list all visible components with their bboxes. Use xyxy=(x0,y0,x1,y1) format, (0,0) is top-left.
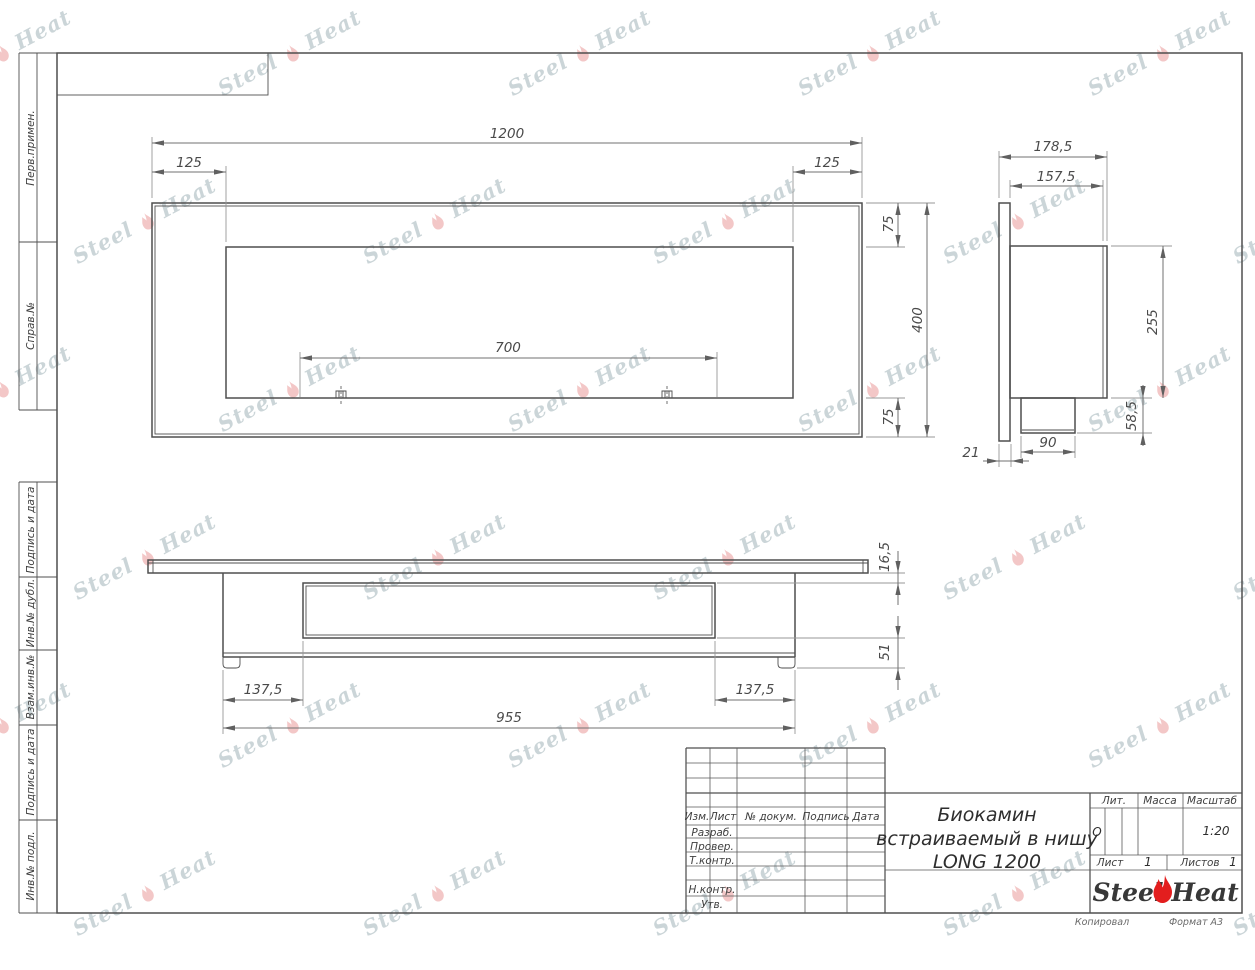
lit-label: Лит. xyxy=(1101,795,1126,807)
plan-view: 16,5 51 137,5 137,5 955 xyxy=(148,542,905,734)
dim-plan-left-offset: 137,5 xyxy=(244,682,283,698)
logo-text-steel: Steel xyxy=(1093,878,1164,907)
sheet-label: Лист xyxy=(1096,857,1124,869)
col-header-doc: № докум. xyxy=(744,811,797,823)
dim-side-flange-thickness: 21 xyxy=(962,445,979,461)
dim-plan-plate-thickness: 16,5 xyxy=(877,542,893,572)
logo-text-heat: Heat xyxy=(1170,878,1239,907)
dim-front-bottom-margin: 75 xyxy=(881,408,897,425)
doc-title-line1: Биокамин xyxy=(937,804,1036,826)
col-header-sign: Подпись xyxy=(802,811,849,823)
copied-note: Копировал xyxy=(1075,917,1129,928)
footer-notes: Копировал Формат А3 xyxy=(1075,917,1223,928)
dim-front-total-width: 1200 xyxy=(490,126,524,142)
sheet-number: 1 xyxy=(1144,855,1152,869)
top-left-stamp-box xyxy=(57,53,268,95)
lit-value: О xyxy=(1092,825,1101,839)
dim-side-depth-body: 157,5 xyxy=(1037,169,1076,185)
doc-title-line2: встраиваемый в нишу xyxy=(876,828,1098,850)
dim-front-top-margin: 75 xyxy=(881,215,897,232)
dim-plan-body-width: 955 xyxy=(496,710,522,726)
margin-label-vzam-inv: Взам.инв.№ xyxy=(25,655,37,720)
title-block: Изм. Лист № докум. Подпись Дата Разраб. … xyxy=(685,748,1242,913)
scale-value: 1:20 xyxy=(1203,824,1230,838)
margin-label-sprav-n: Справ.№ xyxy=(25,302,37,350)
role-prover: Провер. xyxy=(690,841,734,853)
dim-plan-body-drop: 51 xyxy=(877,643,893,660)
front-view: 1200 125 125 700 75 400 75 xyxy=(152,126,935,437)
dim-side-foot-height: 58,5 xyxy=(1124,401,1140,431)
dim-front-right-inset: 125 xyxy=(814,155,840,171)
col-header-list: Лист xyxy=(709,811,737,823)
dim-plan-right-offset: 137,5 xyxy=(736,682,775,698)
role-utv: Утв. xyxy=(701,899,723,911)
side-view: 178,5 157,5 255 58,5 90 21 xyxy=(962,139,1172,467)
dim-side-depth-total: 178,5 xyxy=(1034,139,1073,155)
col-header-date: Дата xyxy=(851,811,879,823)
margin-label-perv-primen: Перв.примен. xyxy=(25,110,37,185)
mass-label: Масса xyxy=(1143,795,1176,807)
dim-front-left-inset: 125 xyxy=(176,155,202,171)
technical-drawing: Перв.примен. Справ.№ Подпись и дата Инв.… xyxy=(0,0,1255,970)
drawing-sheet: Steel HeatSteel HeatSteel HeatSteel Heat… xyxy=(0,0,1255,970)
sheets-total: 1 xyxy=(1229,855,1237,869)
dim-side-body-height: 255 xyxy=(1145,309,1161,335)
role-nkontr: Н.контр. xyxy=(689,884,736,896)
format-note: Формат А3 xyxy=(1169,917,1223,928)
margin-label-inv-podl: Инв.№ подл. xyxy=(25,831,37,900)
margin-label-inv-dubl: Инв.№ дубл. xyxy=(25,579,37,648)
dim-side-foot-width: 90 xyxy=(1039,435,1056,451)
doc-title-line3: LONG 1200 xyxy=(933,851,1041,873)
left-margin-strip: Перв.примен. Справ.№ Подпись и дата Инв.… xyxy=(19,53,57,913)
steelheat-logo: Steel Heat xyxy=(1093,875,1240,907)
scale-label: Масштаб xyxy=(1187,795,1237,807)
col-header-izm: Изм. xyxy=(685,811,710,823)
role-razrab: Разраб. xyxy=(691,827,732,839)
margin-label-podpis-data-1: Подпись и дата xyxy=(25,487,37,574)
sheets-label: Листов xyxy=(1179,857,1219,869)
margin-label-podpis-data-2: Подпись и дата xyxy=(25,729,37,816)
role-tkontr: Т.контр. xyxy=(689,855,735,867)
dim-front-height: 400 xyxy=(910,307,926,333)
dim-front-burner-width: 700 xyxy=(495,340,521,356)
